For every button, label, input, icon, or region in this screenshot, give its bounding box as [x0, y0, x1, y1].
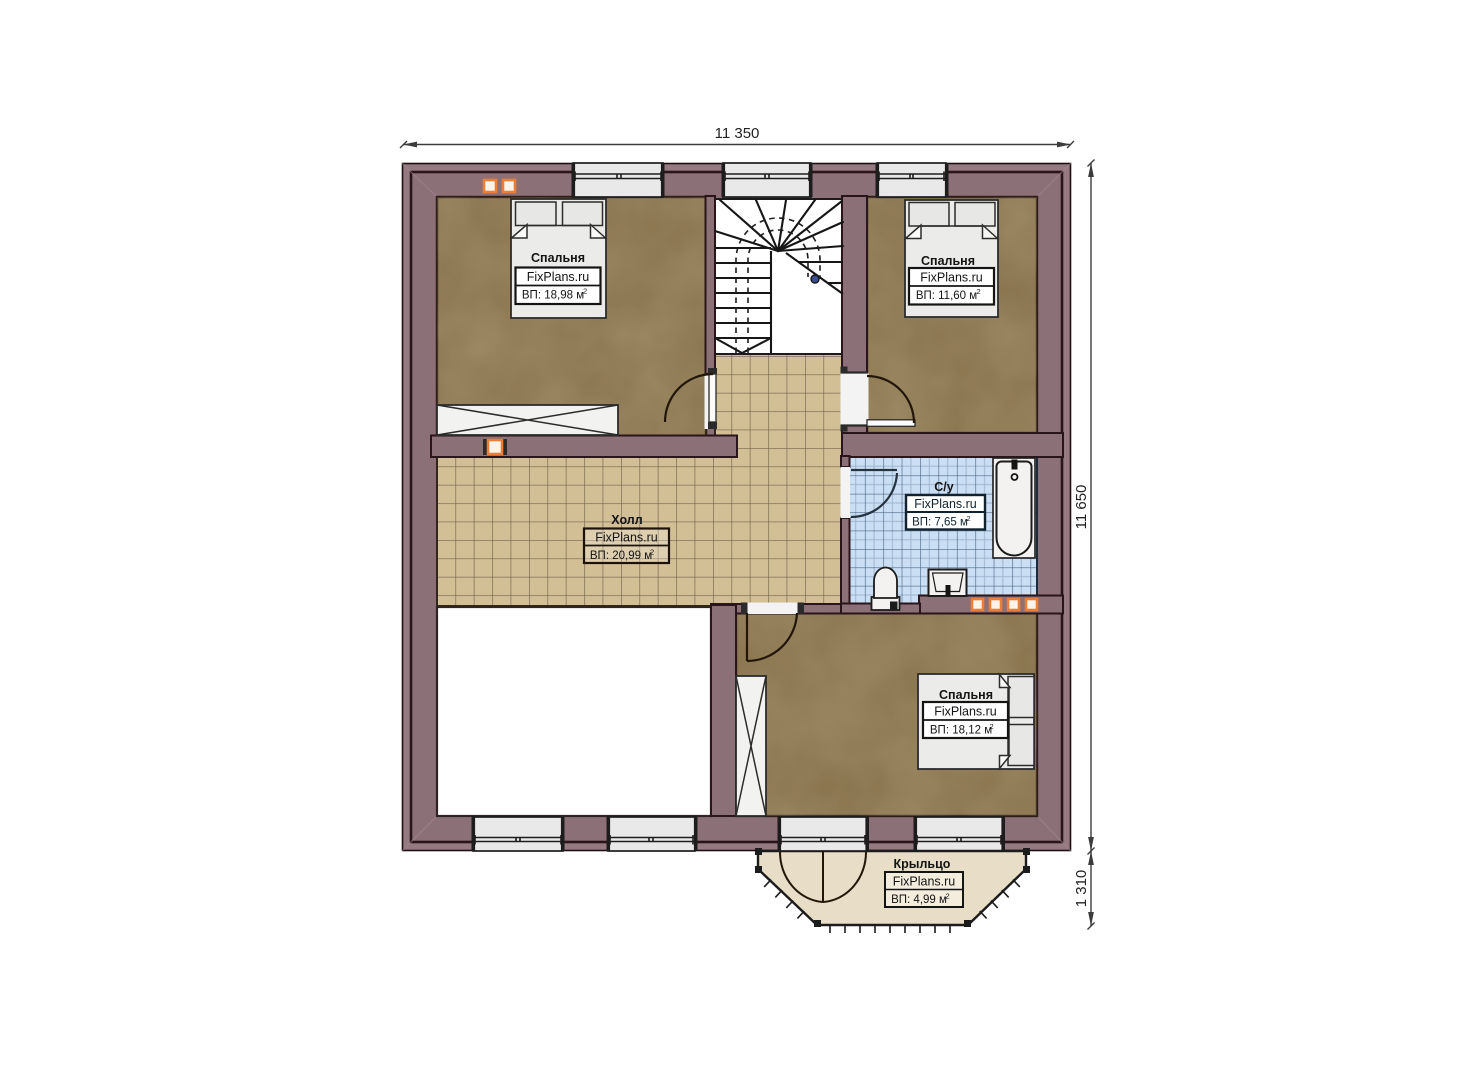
svg-text:2: 2	[967, 514, 971, 523]
svg-text:11 650: 11 650	[1073, 485, 1090, 530]
svg-text:Крыльцо: Крыльцо	[894, 857, 951, 871]
svg-text:FixPlans.ru: FixPlans.ru	[914, 497, 977, 511]
svg-text:FixPlans.ru: FixPlans.ru	[595, 531, 658, 545]
svg-text:2: 2	[946, 892, 950, 901]
svg-text:ВП: 7,65 м: ВП: 7,65 м	[912, 517, 968, 529]
svg-text:Спальня: Спальня	[921, 254, 975, 268]
svg-text:ВП: 18,12 м: ВП: 18,12 м	[930, 725, 992, 737]
svg-text:2: 2	[990, 722, 994, 731]
svg-text:Спальня: Спальня	[939, 688, 993, 702]
svg-text:2: 2	[650, 548, 654, 557]
svg-text:FixPlans.ru: FixPlans.ru	[893, 875, 956, 889]
svg-text:Холл: Холл	[611, 513, 642, 527]
svg-text:FixPlans.ru: FixPlans.ru	[934, 705, 997, 719]
svg-text:Спальня: Спальня	[531, 251, 585, 265]
svg-text:ВП: 18,98 м: ВП: 18,98 м	[522, 290, 584, 302]
svg-text:ВП: 4,99 м: ВП: 4,99 м	[891, 894, 947, 906]
svg-text:2: 2	[977, 287, 981, 296]
svg-text:ВП: 11,60 м: ВП: 11,60 м	[916, 290, 977, 302]
svg-text:1 310: 1 310	[1073, 870, 1090, 908]
svg-text:С/у: С/у	[934, 480, 954, 494]
svg-text:ВП: 20,99 м: ВП: 20,99 м	[590, 550, 652, 562]
svg-text:FixPlans.ru: FixPlans.ru	[527, 270, 590, 284]
svg-text:11 350: 11 350	[715, 125, 760, 142]
svg-text:FixPlans.ru: FixPlans.ru	[920, 271, 983, 285]
svg-text:2: 2	[583, 287, 587, 296]
